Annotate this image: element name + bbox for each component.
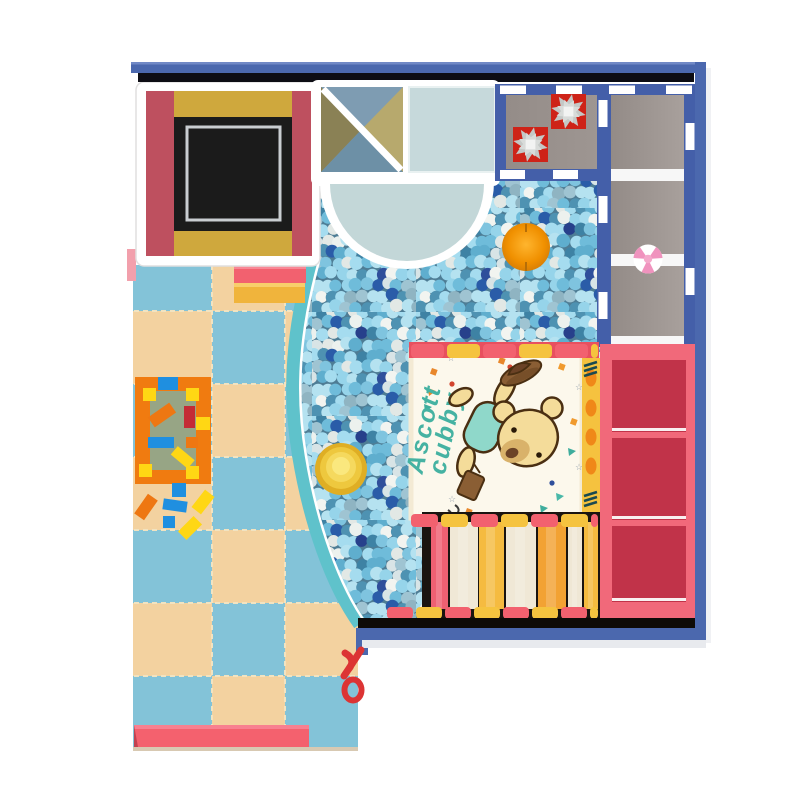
svg-text:☆: ☆ (575, 382, 583, 392)
svg-text:☆: ☆ (448, 494, 456, 504)
svg-text:☆: ☆ (575, 462, 583, 472)
